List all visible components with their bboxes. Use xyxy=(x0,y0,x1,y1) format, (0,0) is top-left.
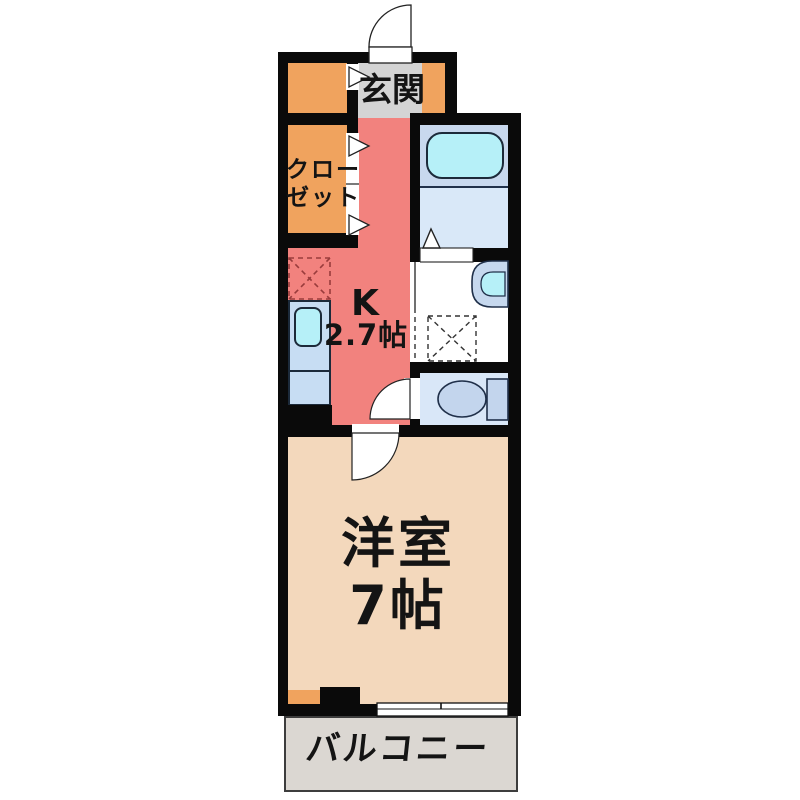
kitchen-size-label: 2.7帖 xyxy=(308,319,424,352)
western-room-label: 洋室 xyxy=(288,513,508,575)
western-room-size-label: 7帖 xyxy=(288,575,508,637)
entrance-door-icon xyxy=(369,5,412,63)
balcony-window-icon xyxy=(377,703,508,716)
western-room-door-icon xyxy=(352,424,399,480)
closet-label-line2: ゼット xyxy=(286,184,348,212)
closet-label: クロー ゼット xyxy=(286,156,348,212)
floorplan: 玄関 クロー ゼット K 2.7帖 洋室 7帖 バルコニー xyxy=(0,0,800,800)
toilet-door-icon xyxy=(370,378,420,419)
closet-doors-icon xyxy=(346,133,369,235)
toilet-icon xyxy=(438,379,508,420)
closet-label-line1: クロー xyxy=(286,156,348,184)
washing-machine-pan-icon xyxy=(428,316,476,361)
refrigerator-space-icon xyxy=(289,258,330,299)
door-and-symbol-overlay xyxy=(0,0,800,800)
entrance-label: 玄関 xyxy=(352,71,432,109)
washbasin-icon xyxy=(472,261,508,307)
bath-door-icon xyxy=(420,229,473,262)
balcony-label: バルコニー xyxy=(282,730,514,769)
